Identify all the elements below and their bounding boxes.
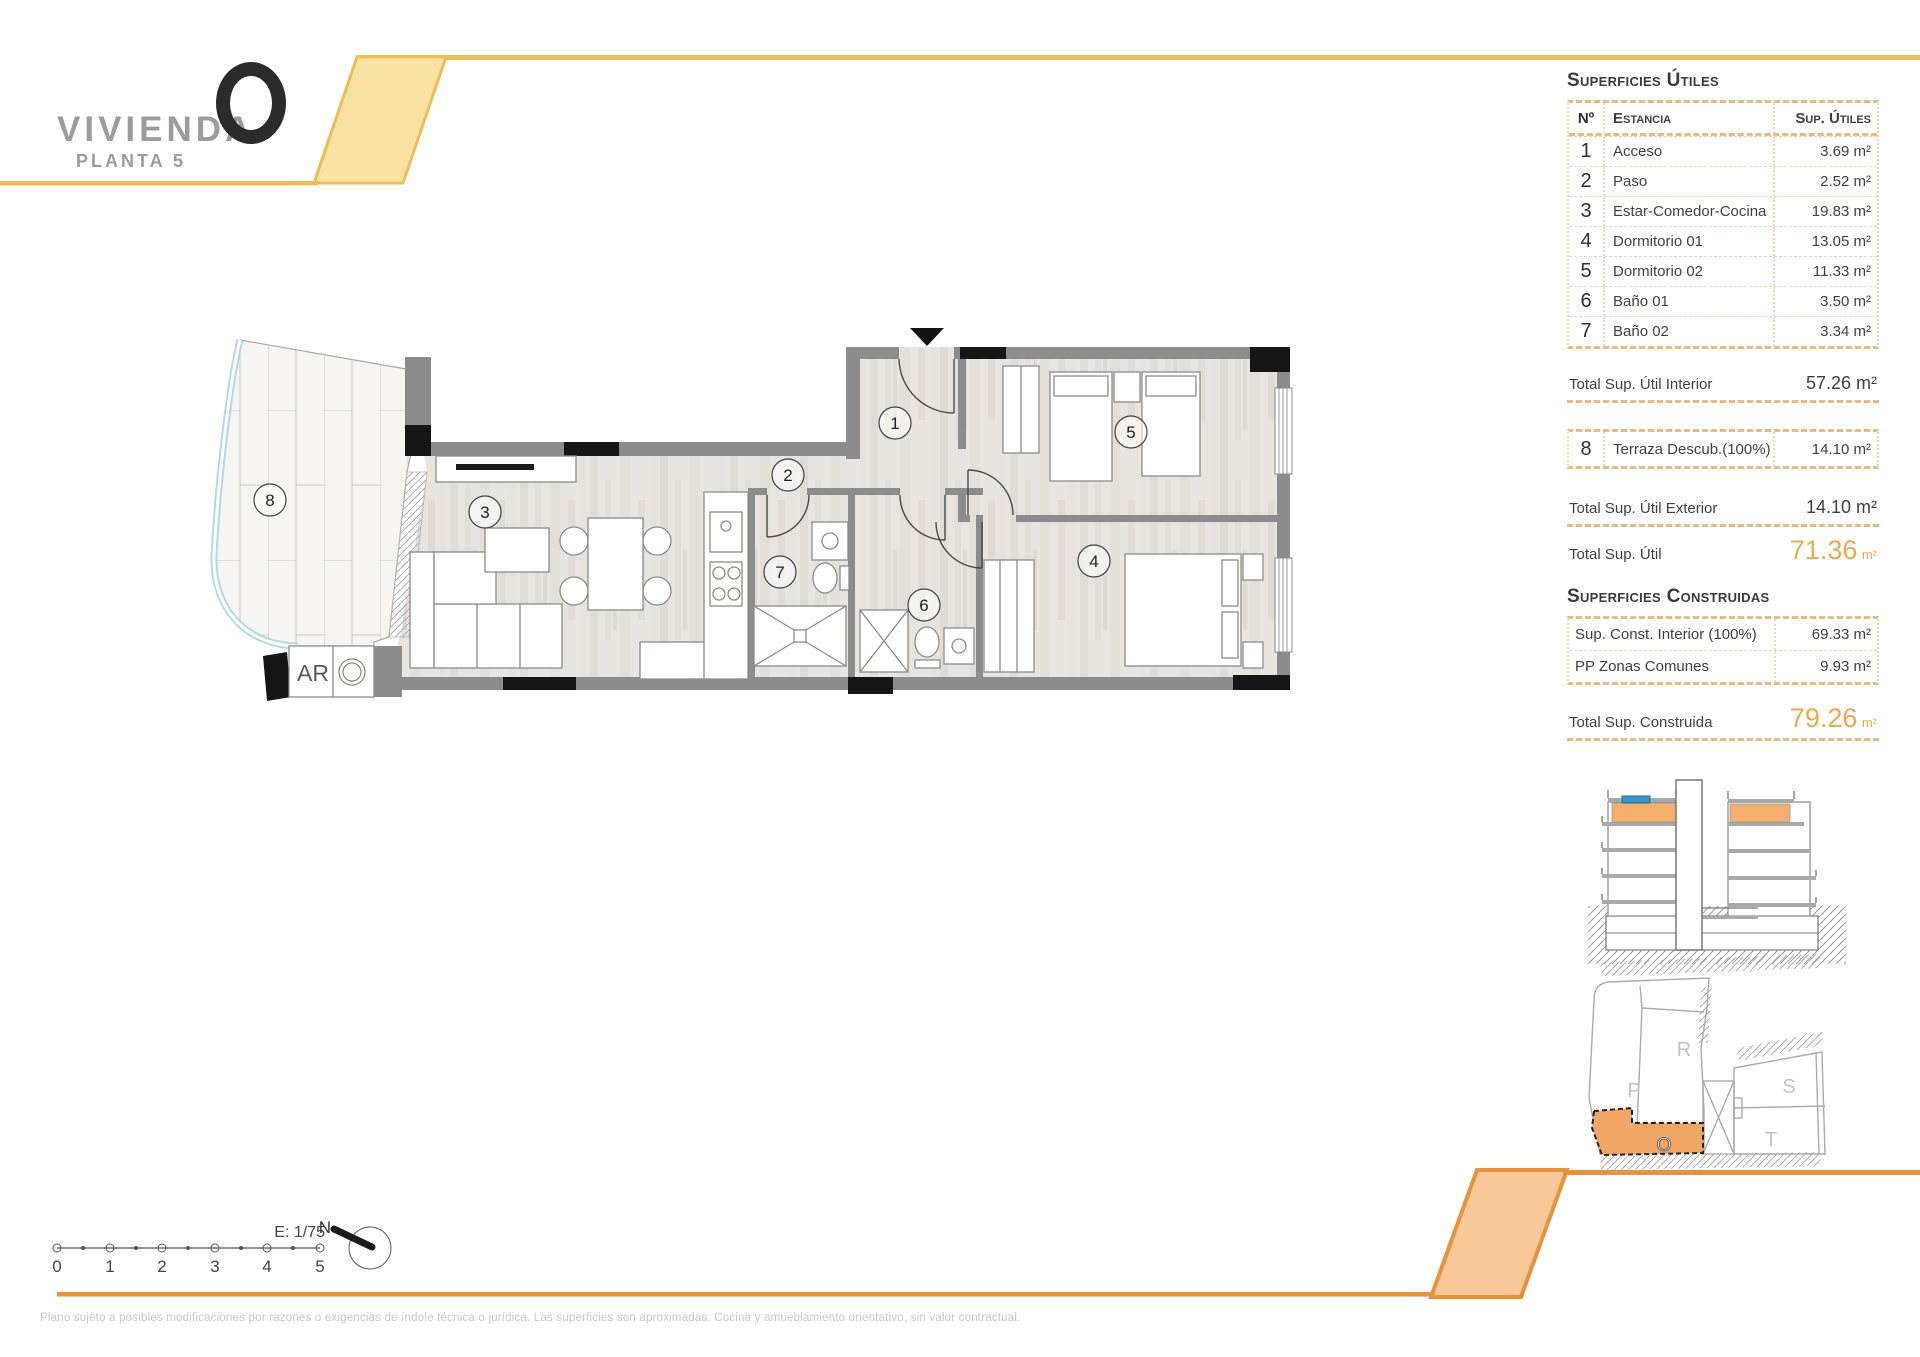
total-exterior-value: 14.10 m² xyxy=(1806,497,1877,518)
core-shaft xyxy=(1676,780,1702,950)
table-row: 5 Dormitorio 02 11.33 m² xyxy=(1569,256,1877,286)
total-util-unit: m² xyxy=(1862,547,1877,562)
floor-title: PLANTA 5 xyxy=(76,151,186,172)
total-util-label: Total Sup. Útil xyxy=(1569,546,1662,563)
floor-plan-drawing: AR 1 2 3 4 5 6 7 8 xyxy=(100,260,1320,720)
hatch-mid xyxy=(1698,986,1712,1043)
north-arrow-icon: N xyxy=(319,1218,391,1269)
row-num: 2 xyxy=(1569,170,1603,193)
svg-text:8: 8 xyxy=(265,491,274,510)
svg-text:N: N xyxy=(319,1218,331,1237)
row-room: Dormitorio 01 xyxy=(1603,227,1773,256)
table-row: 4 Dormitorio 01 13.05 m² xyxy=(1569,226,1877,256)
tv xyxy=(456,464,534,470)
top-band-parallelogram xyxy=(314,57,446,183)
unit-o-label: O xyxy=(1657,1135,1672,1156)
block-r-label: R xyxy=(1677,1039,1691,1061)
surfaces-utiles-table: Nº Estancia Sup. Útiles 1 Acceso 3.69 m²… xyxy=(1567,100,1879,349)
left-tower xyxy=(1602,790,1676,916)
row-room: Dormitorio 02 xyxy=(1603,257,1773,286)
row-room: Paso xyxy=(1603,167,1773,196)
bottom-band-line xyxy=(57,1292,1437,1297)
terrace-num: 8 xyxy=(1569,438,1603,461)
construida-label: Sup. Const. Interior (100%) xyxy=(1569,626,1774,643)
divider xyxy=(1567,400,1879,403)
total-util-value: 71.36 xyxy=(1790,535,1858,565)
construida-row: Sup. Const. Interior (100%) 69.33 m² xyxy=(1569,619,1877,650)
bottom-band-parallelogram xyxy=(1431,1170,1567,1297)
row-num: 5 xyxy=(1569,260,1603,283)
svg-text:6: 6 xyxy=(919,596,928,615)
room-label-3: 3 xyxy=(469,496,501,528)
surfaces-construidas-table: Sup. Const. Interior (100%) 69.33 m² PP … xyxy=(1567,616,1879,685)
row-area: 19.83 m² xyxy=(1773,197,1877,226)
room-label-4: 4 xyxy=(1078,545,1110,577)
svg-text:1: 1 xyxy=(105,1257,114,1276)
row-area: 3.69 m² xyxy=(1773,137,1877,166)
row-area: 11.33 m² xyxy=(1773,257,1877,286)
surfaces-panel: Superficies Útiles Nº Estancia Sup. Útil… xyxy=(1567,70,1879,741)
table-row: 2 Paso 2.52 m² xyxy=(1569,166,1877,196)
row-area: 3.34 m² xyxy=(1773,317,1877,346)
terrace-row: 8 Terraza Descub.(100%) 14.10 m² xyxy=(1567,429,1879,469)
svg-text:5: 5 xyxy=(315,1257,324,1276)
table-row: 6 Baño 01 3.50 m² xyxy=(1569,286,1877,316)
ar-room-label: AR xyxy=(297,660,329,686)
divider xyxy=(1567,524,1879,527)
table-header-row: Nº Estancia Sup. Útiles xyxy=(1569,103,1877,136)
room-label-1: 1 xyxy=(879,407,911,439)
row-num: 1 xyxy=(1569,140,1603,163)
row-num: 3 xyxy=(1569,200,1603,223)
street-hatch-top xyxy=(1600,954,1822,976)
svg-text:1: 1 xyxy=(890,414,899,433)
svg-text:2: 2 xyxy=(157,1257,166,1276)
row-num: 4 xyxy=(1569,230,1603,253)
col-area: Sup. Útiles xyxy=(1773,103,1877,133)
construida-row: PP Zonas Comunes 9.93 m² xyxy=(1569,650,1877,682)
svg-text:3: 3 xyxy=(480,503,489,522)
disclaimer-text: Plano sujeto a posibles modificaciones p… xyxy=(40,1312,1021,1324)
table-row: 7 Baño 02 3.34 m² xyxy=(1569,316,1877,346)
highlighted-unit xyxy=(1592,1108,1703,1155)
row-area: 3.50 m² xyxy=(1773,287,1877,316)
total-construida-label: Total Sup. Construida xyxy=(1569,714,1712,731)
site-plan-diagram: R P S T O xyxy=(1570,948,1870,1183)
pool-element xyxy=(1622,796,1650,803)
total-interior-label: Total Sup. Útil Interior xyxy=(1569,376,1712,393)
svg-text:3: 3 xyxy=(210,1257,219,1276)
total-interior-value: 57.26 m² xyxy=(1806,373,1877,394)
top-left-band-line xyxy=(0,181,318,186)
block-s-label: S xyxy=(1782,1076,1795,1098)
col-room: Estancia xyxy=(1603,103,1773,133)
total-construida-unit: m² xyxy=(1862,715,1877,730)
total-exterior-row: Total Sup. Útil Exterior 14.10 m² xyxy=(1567,495,1879,524)
block-p-label: P xyxy=(1627,1080,1640,1102)
coffee-table xyxy=(485,528,549,572)
row-area: 13.05 m² xyxy=(1773,227,1877,256)
terrace-area-value: 14.10 m² xyxy=(1773,432,1877,466)
col-num: Nº xyxy=(1569,110,1603,127)
row-room: Estar-Comedor-Cocina xyxy=(1603,197,1773,226)
row-area: 2.52 m² xyxy=(1773,167,1877,196)
svg-text:7: 7 xyxy=(775,563,784,582)
row-room: Baño 01 xyxy=(1603,287,1773,316)
scale-label: E: 1/75 xyxy=(274,1224,325,1241)
table-row: 1 Acceso 3.69 m² xyxy=(1569,136,1877,166)
plan-sheet: VIVIENDA PLANTA 5 xyxy=(0,0,1920,1357)
hatch-right xyxy=(1738,1032,1823,1061)
svg-text:4: 4 xyxy=(1089,552,1098,571)
scale-bar-group: 0 1 2 3 4 5 E: 1/75 N xyxy=(40,1215,460,1285)
total-exterior-label: Total Sup. Útil Exterior xyxy=(1569,500,1717,517)
construida-value: 69.33 m² xyxy=(1774,619,1877,650)
top-band-line xyxy=(357,55,1920,60)
row-room: Acceso xyxy=(1603,137,1773,166)
terrace-room: Terraza Descub.(100%) xyxy=(1603,432,1773,466)
table-row: 3 Estar-Comedor-Cocina 19.83 m² xyxy=(1569,196,1877,226)
total-util-row: Total Sup. Útil 71.36 m² xyxy=(1567,535,1879,566)
room-label-7: 7 xyxy=(764,556,796,588)
right-tower xyxy=(1728,791,1816,916)
total-interior-row: Total Sup. Útil Interior 57.26 m² xyxy=(1567,371,1879,400)
row-num: 6 xyxy=(1569,290,1603,313)
room-label-6: 6 xyxy=(908,589,940,621)
construida-label: PP Zonas Comunes xyxy=(1569,658,1774,675)
logo-o-ring-icon xyxy=(216,62,286,144)
scale-tick-labels: 0 1 2 3 4 5 xyxy=(52,1257,324,1276)
svg-text:0: 0 xyxy=(52,1257,61,1276)
divider xyxy=(1567,738,1879,741)
svg-text:2: 2 xyxy=(783,466,792,485)
highlighted-floor xyxy=(1730,804,1790,822)
entry-arrow-icon xyxy=(910,328,944,346)
highlighted-floor xyxy=(1612,803,1676,822)
surfaces-utiles-title: Superficies Útiles xyxy=(1567,70,1879,92)
total-construida-row: Total Sup. Construida 79.26 m² xyxy=(1567,703,1879,734)
room-label-2: 2 xyxy=(772,459,804,491)
total-construida-value: 79.26 xyxy=(1790,703,1858,733)
row-room: Baño 02 xyxy=(1603,317,1773,346)
surfaces-construidas-title: Superficies Construidas xyxy=(1567,586,1879,608)
room-label-8: 8 xyxy=(254,484,286,516)
construida-value: 9.93 m² xyxy=(1774,651,1877,682)
svg-text:5: 5 xyxy=(1126,423,1135,442)
block-t-label: T xyxy=(1765,1129,1777,1151)
svg-text:4: 4 xyxy=(262,1257,271,1276)
row-num: 7 xyxy=(1569,320,1603,343)
building-section-diagram xyxy=(1588,772,1858,972)
room-label-5: 5 xyxy=(1115,416,1147,448)
